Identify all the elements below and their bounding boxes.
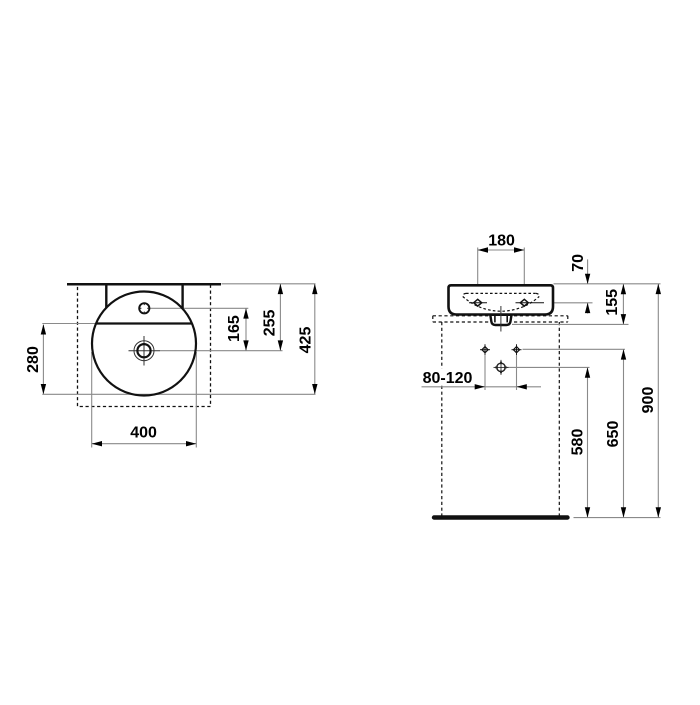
svg-text:165: 165: [226, 315, 243, 342]
svg-text:900: 900: [640, 387, 657, 414]
svg-text:580: 580: [570, 429, 587, 456]
svg-text:650: 650: [605, 421, 622, 448]
svg-text:180: 180: [488, 233, 515, 250]
svg-text:255: 255: [262, 309, 279, 336]
svg-text:80-120: 80-120: [423, 370, 473, 387]
svg-text:425: 425: [298, 327, 315, 354]
svg-text:70: 70: [570, 254, 587, 272]
svg-text:155: 155: [604, 289, 621, 316]
svg-text:280: 280: [25, 346, 42, 373]
svg-text:400: 400: [130, 424, 157, 441]
